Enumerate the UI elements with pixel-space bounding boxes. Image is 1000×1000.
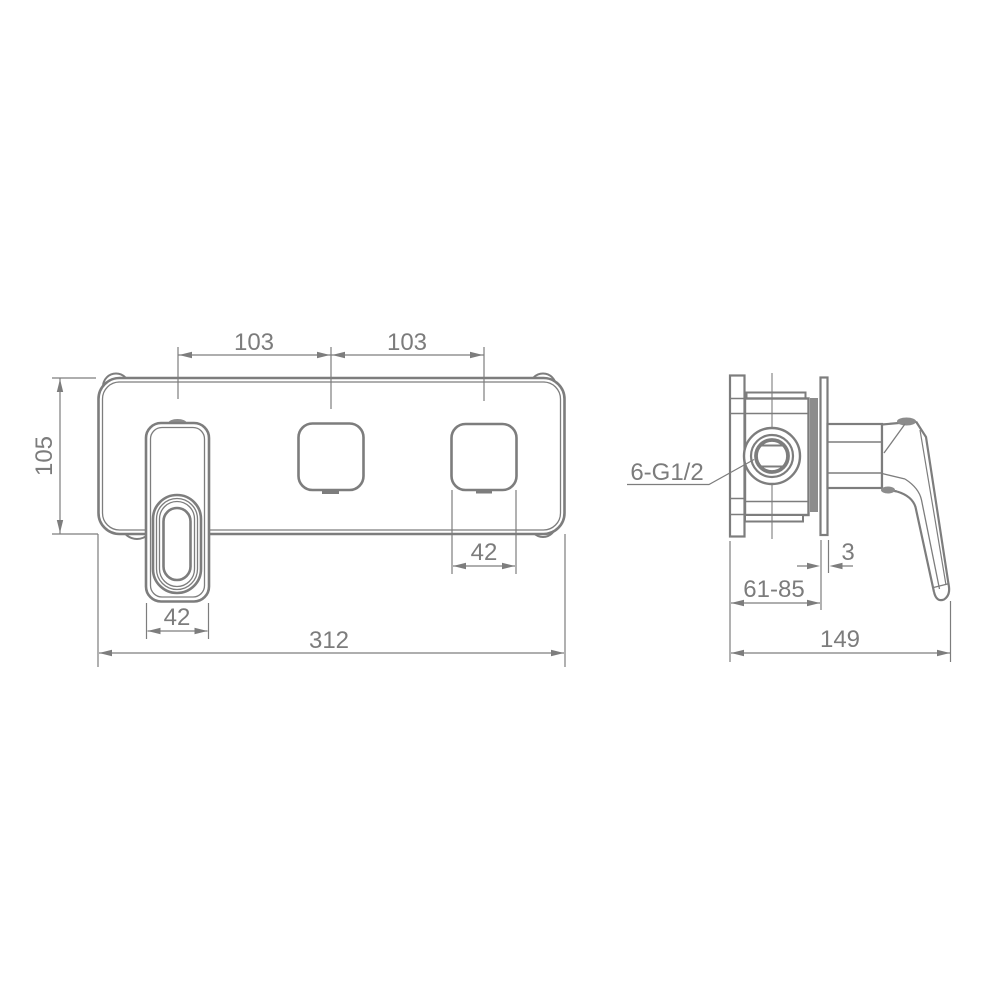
thread-label: 6-G1/2 [630,459,703,486]
drawing-svg: 103 103 105 42 42 [0,0,1000,1000]
dim-spacing-left-label: 103 [234,329,274,356]
technical-drawing: 103 103 105 42 42 [0,0,1000,1000]
dim-total-depth: 149 [731,601,951,662]
handle-base-hole [164,508,191,580]
mounting-bracket [730,376,745,537]
outlet-opening [452,424,517,490]
cartridge-stem [828,424,883,488]
dim-spacing-right-label: 103 [387,329,427,356]
valve-body-bottom-cap [745,515,803,522]
dim-total-depth-label: 149 [820,626,860,653]
dim-plate-width-label: 312 [309,627,349,654]
dim-wall-plate-thickness-label: 3 [841,539,854,566]
dim-handle-plate-width: 42 [147,603,209,639]
handle-lever [881,418,950,601]
side-view: 6-G1/2 3 61-85 149 [627,373,951,662]
dim-install-depth: 61-85 [730,541,820,662]
dim-plate-height: 105 [31,378,98,534]
dim-plate-height-label: 105 [31,436,58,476]
dim-install-depth-label: 61-85 [743,576,804,603]
handle-hub-underside [881,487,895,494]
handle-hub-bump [897,418,916,426]
dim-handle-plate-width-label: 42 [164,604,191,631]
front-view: 103 103 105 42 42 [31,329,565,667]
seal-strip [810,398,818,512]
dim-wall-plate-thickness: 3 [797,539,855,610]
dim-outlet-width-label: 42 [471,539,498,566]
spout-opening [299,424,364,491]
